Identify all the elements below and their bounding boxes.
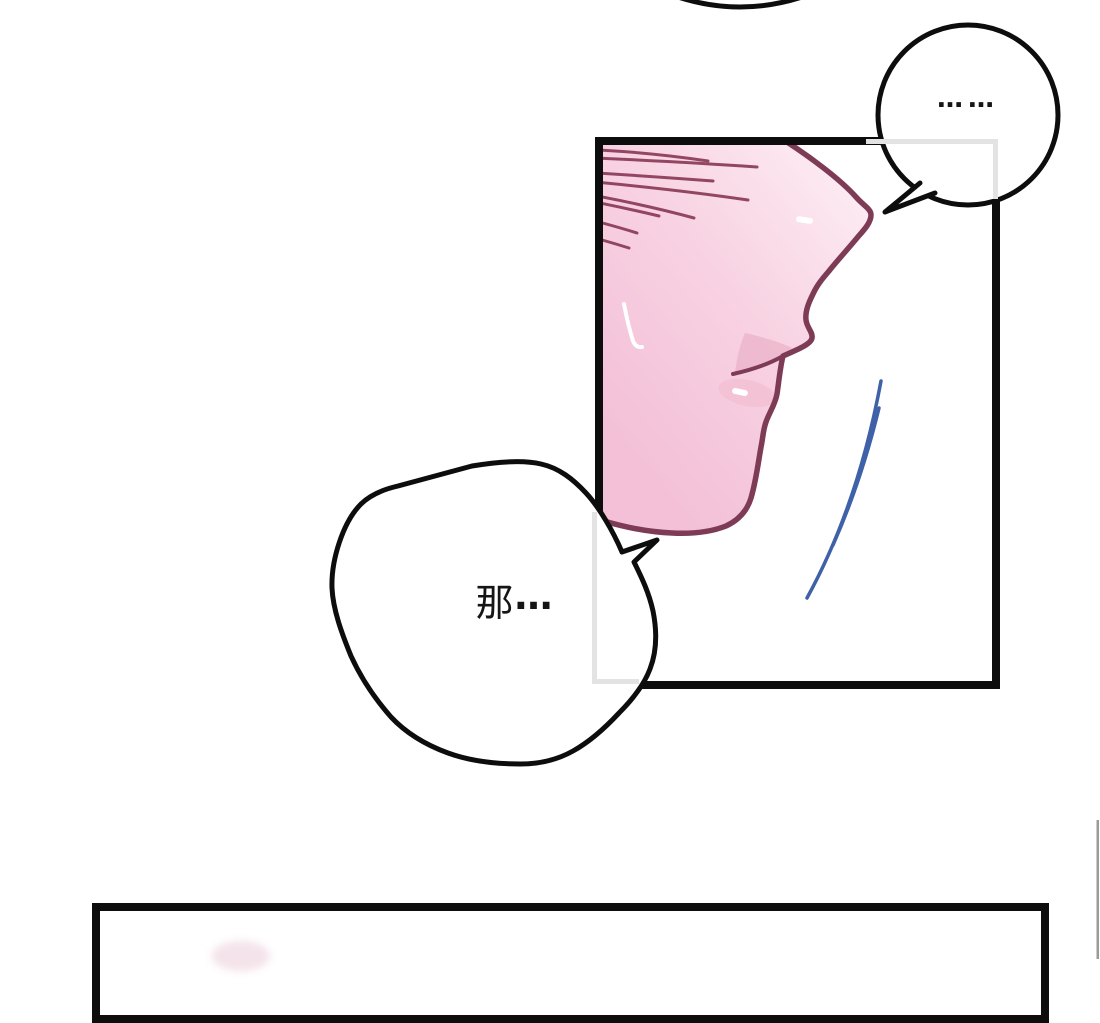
comic-page: { "page": { "kind": "webtoon comic page"… bbox=[0, 0, 1100, 959]
na-bubble-ellipsis: … bbox=[515, 574, 555, 618]
ellipsis-bubble bbox=[878, 25, 1058, 212]
ellipsis-bubble-text: …… bbox=[880, 84, 1056, 114]
ellipsis-bubble-circle bbox=[878, 25, 1058, 205]
page-edge-line bbox=[1097, 820, 1100, 959]
inner-frame-top-right-v bbox=[993, 139, 998, 199]
na-bubble-char: 那 bbox=[475, 581, 514, 625]
overlay-layer bbox=[0, 0, 1100, 959]
na-bubble-text: 那… bbox=[430, 580, 600, 626]
inner-frame-top-right-h bbox=[866, 139, 998, 144]
inner-frame-bottom-left-h bbox=[592, 679, 639, 684]
top-partial-bubble bbox=[678, 0, 802, 7]
